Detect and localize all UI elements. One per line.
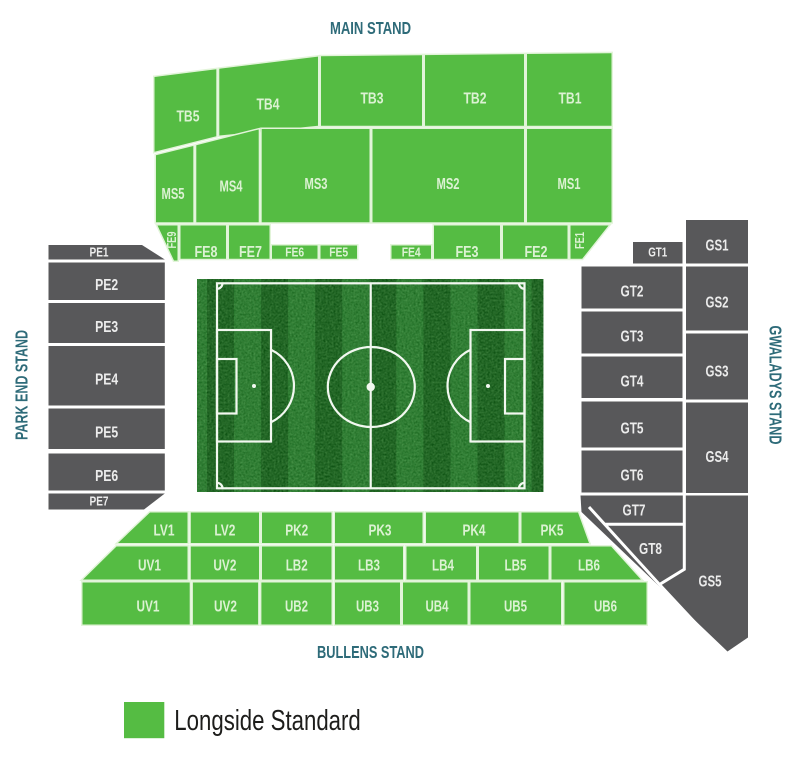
svg-text:MS5: MS5 bbox=[162, 186, 185, 203]
svg-text:BULLENS STAND: BULLENS STAND bbox=[317, 642, 424, 662]
svg-text:FE2: FE2 bbox=[525, 244, 548, 261]
svg-text:MS3: MS3 bbox=[305, 176, 328, 193]
svg-text:LV2: LV2 bbox=[214, 523, 235, 540]
svg-text:PE7: PE7 bbox=[90, 495, 109, 509]
svg-text:GT1: GT1 bbox=[648, 246, 667, 260]
svg-text:GT8: GT8 bbox=[639, 541, 662, 558]
svg-text:TB3: TB3 bbox=[361, 91, 384, 108]
svg-text:GT5: GT5 bbox=[621, 421, 644, 438]
svg-text:FE3: FE3 bbox=[456, 244, 479, 261]
svg-text:FE5: FE5 bbox=[329, 246, 348, 260]
svg-text:LB6: LB6 bbox=[578, 558, 600, 575]
svg-text:GT2: GT2 bbox=[621, 284, 644, 301]
svg-text:UV1: UV1 bbox=[138, 558, 161, 575]
svg-text:TB5: TB5 bbox=[177, 109, 200, 126]
svg-text:Longside Standard: Longside Standard bbox=[174, 705, 360, 737]
svg-text:MS4: MS4 bbox=[220, 179, 243, 196]
svg-text:PE2: PE2 bbox=[95, 277, 118, 294]
svg-text:PE5: PE5 bbox=[95, 425, 118, 442]
svg-text:UB2: UB2 bbox=[285, 599, 308, 616]
svg-text:GS2: GS2 bbox=[706, 295, 729, 312]
svg-text:UB6: UB6 bbox=[594, 599, 617, 616]
svg-text:UV2: UV2 bbox=[213, 558, 236, 575]
svg-text:GS4: GS4 bbox=[706, 449, 729, 466]
svg-text:PE1: PE1 bbox=[90, 246, 109, 260]
svg-text:UV2: UV2 bbox=[214, 599, 237, 616]
svg-text:LB5: LB5 bbox=[505, 558, 527, 575]
svg-text:FE1: FE1 bbox=[573, 232, 587, 249]
svg-text:GT3: GT3 bbox=[621, 329, 644, 346]
svg-text:LV1: LV1 bbox=[154, 523, 175, 540]
svg-text:GS3: GS3 bbox=[706, 364, 729, 381]
svg-text:GT6: GT6 bbox=[621, 468, 644, 485]
svg-text:GWALADYS STAND: GWALADYS STAND bbox=[766, 326, 786, 445]
svg-text:PK5: PK5 bbox=[541, 523, 564, 540]
svg-text:PE3: PE3 bbox=[95, 319, 118, 336]
svg-text:FE6: FE6 bbox=[285, 246, 304, 260]
svg-text:UB4: UB4 bbox=[426, 599, 449, 616]
svg-text:MS2: MS2 bbox=[437, 176, 460, 193]
svg-text:FE4: FE4 bbox=[402, 246, 421, 260]
svg-text:PE4: PE4 bbox=[95, 372, 118, 389]
svg-text:GS5: GS5 bbox=[699, 574, 722, 591]
svg-text:LB4: LB4 bbox=[432, 558, 454, 575]
svg-text:FE9: FE9 bbox=[165, 231, 179, 248]
svg-text:GS1: GS1 bbox=[706, 238, 729, 255]
svg-text:PK2: PK2 bbox=[285, 523, 308, 540]
svg-text:UB5: UB5 bbox=[504, 599, 527, 616]
svg-text:GT4: GT4 bbox=[621, 374, 644, 391]
svg-text:TB2: TB2 bbox=[464, 91, 487, 108]
svg-text:GT7: GT7 bbox=[623, 503, 646, 520]
svg-text:MS1: MS1 bbox=[558, 176, 581, 193]
svg-text:FE7: FE7 bbox=[239, 244, 262, 261]
svg-text:TB1: TB1 bbox=[559, 91, 582, 108]
svg-text:LB2: LB2 bbox=[286, 558, 308, 575]
svg-text:FE8: FE8 bbox=[195, 244, 218, 261]
svg-text:PK3: PK3 bbox=[369, 523, 392, 540]
svg-text:LB3: LB3 bbox=[358, 558, 380, 575]
svg-text:PE6: PE6 bbox=[95, 468, 118, 485]
svg-text:UV1: UV1 bbox=[137, 599, 160, 616]
svg-text:UB3: UB3 bbox=[356, 599, 379, 616]
svg-text:TB4: TB4 bbox=[257, 96, 280, 113]
svg-text:PARK END STAND: PARK END STAND bbox=[12, 330, 32, 440]
svg-text:MAIN STAND: MAIN STAND bbox=[330, 18, 411, 38]
svg-text:PK4: PK4 bbox=[463, 523, 486, 540]
